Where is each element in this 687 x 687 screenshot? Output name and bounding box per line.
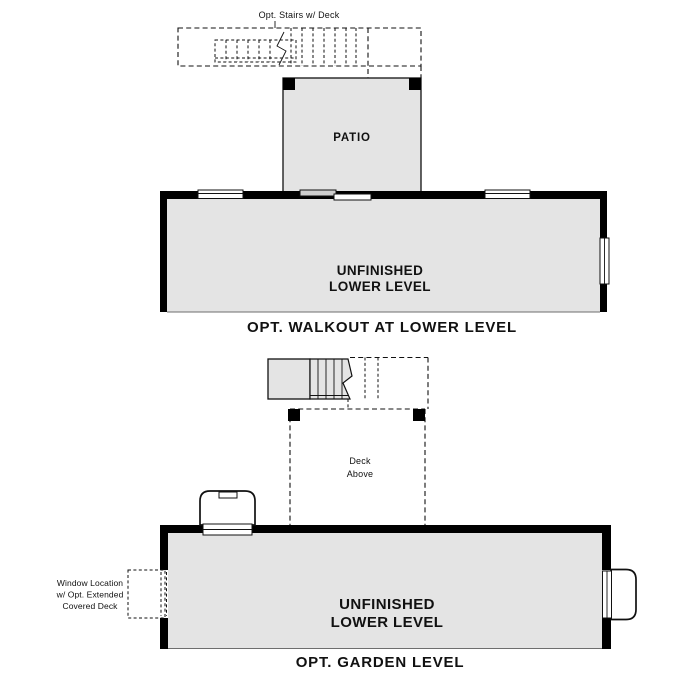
window-right-wall: [600, 238, 609, 284]
garden-room-label-line2: LOWER LEVEL: [331, 614, 444, 631]
opt-window-dashed-box: [128, 570, 165, 618]
stair-dashed-continuation: [348, 358, 428, 410]
deck-above-outline: Deck Above: [288, 409, 425, 525]
window-well-top: [200, 491, 255, 535]
stairs-note-label: Opt. Stairs w/ Deck: [259, 10, 340, 20]
opt-stairs-deck-outline: Opt. Stairs w/ Deck: [178, 10, 421, 78]
upper-flight-treads: [291, 28, 356, 66]
walkout-caption: OPT. WALKOUT AT LOWER LEVEL: [247, 319, 517, 336]
lower-stair-flight-dashed: [215, 40, 296, 62]
deck-post-left: [288, 409, 300, 421]
patio-label: PATIO: [333, 132, 370, 144]
patio-post-left: [283, 78, 295, 90]
stair-treads-block: [310, 359, 352, 399]
garden-right-wall-lower: [602, 618, 611, 649]
deck-post-right: [413, 409, 425, 421]
garden-plan: Deck Above: [56, 358, 636, 672]
deck-dashed-outline: [178, 28, 421, 66]
window-note-line2: w/ Opt. Extended: [56, 590, 124, 600]
walkout-room-label-line2: LOWER LEVEL: [329, 279, 431, 294]
garden-left-wall-lower: [160, 618, 168, 649]
floorplan-canvas: Opt. Stairs w/ Deck: [0, 0, 687, 687]
window-well-right: [603, 570, 637, 620]
deck-note-line2: Above: [347, 469, 374, 479]
window-top-left: [198, 190, 243, 199]
deck-note-line1: Deck: [349, 456, 371, 466]
window-note-line3: Covered Deck: [62, 601, 118, 611]
floorplan-page: Opt. Stairs w/ Deck: [0, 0, 687, 687]
window-note-line1: Window Location: [57, 578, 123, 588]
garden-building: Window Location w/ Opt. Extended Covered…: [56, 491, 636, 649]
window-note: Window Location w/ Opt. Extended Covered…: [56, 578, 124, 611]
garden-stairs: [268, 358, 428, 410]
patio: PATIO: [283, 78, 421, 195]
garden-room-label-line1: UNFINISHED: [339, 596, 435, 613]
well-notch: [219, 492, 237, 498]
patio-post-right: [409, 78, 421, 90]
garden-left-wall-upper: [160, 525, 168, 570]
walkout-plan: Opt. Stairs w/ Deck: [160, 10, 609, 336]
walkout-right-wall-upper: [600, 191, 607, 238]
lower-flight-treads: [226, 40, 270, 62]
walkout-building: UNFINISHED LOWER LEVEL: [160, 190, 609, 312]
walkout-right-wall-lower: [600, 284, 607, 312]
window-top-right: [485, 190, 530, 199]
walkout-room-label-line1: UNFINISHED: [337, 263, 424, 278]
garden-right-wall-upper: [602, 525, 611, 570]
walkout-left-wall: [160, 191, 167, 312]
stair-landing: [268, 359, 310, 399]
garden-caption: OPT. GARDEN LEVEL: [296, 654, 465, 671]
stair-break-line: [277, 32, 286, 65]
